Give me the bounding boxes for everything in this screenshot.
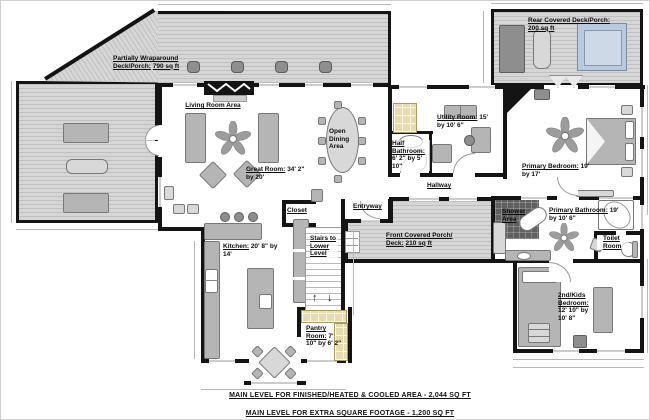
hot-tub-inner — [584, 30, 622, 66]
fireplace-zigzag — [204, 81, 254, 95]
rear-deck-sofa — [499, 25, 525, 73]
porch-top-wall — [389, 197, 493, 201]
pantry-right-wall — [348, 307, 352, 363]
bed-pillow — [625, 121, 634, 139]
dining-chair — [318, 157, 326, 165]
dimension-line — [194, 241, 195, 359]
stairs-up-arrow-icon: ↑ — [312, 293, 318, 304]
primary-bedroom-label: Primary Bedroom: 19' by 17' — [522, 163, 594, 178]
stairs-down-arrow-icon: ↓ — [327, 293, 333, 304]
living-room-label: Living Room Area — [174, 102, 252, 110]
dimension-line — [647, 85, 648, 215]
dimension-line — [201, 389, 346, 390]
bar-stool — [220, 212, 230, 222]
dining-chair — [334, 175, 342, 183]
window — [640, 107, 644, 137]
window — [259, 83, 279, 87]
window — [589, 85, 615, 89]
window — [173, 83, 197, 87]
window — [251, 381, 297, 385]
finished-area-summary: MAIN LEVEL FOR FINISHED/HEATED & COOLED … — [150, 392, 550, 399]
window — [597, 349, 625, 353]
primary-bathroom-label: Primary Bathroom: 19' by 10' 6" — [549, 207, 621, 222]
deck-sofa — [63, 123, 109, 143]
dimension-line — [16, 229, 158, 230]
console-table — [187, 204, 199, 214]
linen-cabinet — [493, 222, 506, 254]
dining-chair — [358, 157, 366, 165]
front-porch-label: Front Covered Porch/ Deck: 210 sq ft — [386, 232, 468, 247]
bed-pillow — [625, 143, 634, 161]
hallway-top-wall — [475, 173, 506, 177]
dimension-line — [158, 4, 391, 5]
window — [209, 359, 235, 363]
hallway-top-wall — [420, 173, 453, 177]
rear-deck-lounge — [533, 29, 551, 69]
great-room-bottom-wall — [158, 227, 206, 231]
deck-table — [66, 159, 108, 174]
sofa — [258, 113, 279, 163]
dimension-line — [513, 367, 644, 368]
dimension-line — [353, 229, 354, 315]
extra-area-summary: MAIN LEVEL FOR EXTRA SQUARE FOOTAGE - 1,… — [150, 410, 550, 417]
bunk-ladder — [528, 323, 550, 343]
nightstand — [621, 167, 633, 177]
ottoman — [311, 189, 323, 202]
stairs-label: Stairs to Lower Level — [310, 235, 338, 258]
pantry-shelves — [301, 310, 347, 323]
shower-area-label: Shower Area — [502, 208, 530, 223]
kids-bedroom-label: 2nd/Kids Bedroom: 12' 10" by 10' 8" — [558, 292, 598, 323]
window — [307, 359, 337, 363]
open-dining-label: Open Dining Area — [329, 128, 363, 151]
window-bench — [576, 190, 614, 197]
utility-room-label: Utility Room: 15' by 10' 6" — [437, 114, 495, 129]
utility-sink-cabinet — [432, 144, 452, 163]
porch-step-line — [345, 238, 358, 239]
pantry-label: Pantry Room: 7' 10" by 6' 2" — [306, 325, 344, 348]
window — [351, 83, 373, 87]
closet-wall — [282, 200, 286, 226]
entryway-label: Entryway — [353, 203, 393, 211]
window — [640, 149, 644, 177]
great-room-left-wall — [158, 83, 162, 125]
hallway-top-wall — [391, 173, 400, 177]
great-room-label: Great Room: 34' 2" by 20' — [246, 166, 308, 181]
window — [409, 197, 439, 201]
ceiling-fan-icon — [549, 223, 579, 258]
island-sink — [259, 294, 272, 309]
floor-plan: ↑ ↓ — [0, 0, 650, 420]
bedroom-chair — [534, 89, 550, 100]
side-table — [164, 186, 174, 200]
pantry-left-wall — [297, 307, 301, 337]
kids-chair — [573, 335, 587, 348]
bar-stool — [248, 212, 258, 222]
bunk-ladder-rung — [528, 336, 550, 337]
window — [640, 286, 644, 318]
deck-stool — [231, 61, 244, 73]
toilet-tank — [632, 241, 638, 258]
toilet-room-label: Toilet Room — [603, 235, 629, 250]
sofa — [185, 113, 206, 163]
dimension-line — [483, 11, 484, 83]
window — [449, 197, 477, 201]
desk-chair — [464, 135, 475, 146]
porch-step-line — [345, 245, 358, 246]
ceiling-fan-icon — [215, 121, 251, 162]
console-table — [173, 204, 185, 214]
deck-stool — [275, 61, 288, 73]
nightstand — [621, 105, 633, 115]
kitchen-counter-left — [204, 241, 220, 359]
wraparound-deck-label: Partially Wraparound Deck/Porch: 790 sq … — [113, 55, 191, 70]
kitchen-sink-divider — [205, 280, 218, 281]
deck-stool — [319, 61, 332, 73]
vanity-sink — [517, 252, 531, 260]
dining-chair — [358, 117, 366, 125]
window — [640, 205, 644, 229]
mudroom-cubbies — [393, 103, 417, 133]
fireplace-hearth — [213, 95, 247, 102]
kitchen-label: Kitchen: 20' 8" by 14' — [223, 243, 287, 258]
kitchen-peninsula-counter — [204, 223, 262, 240]
window — [305, 83, 323, 87]
hallway-label: Hallway — [427, 182, 463, 190]
kitchen-sink — [205, 269, 218, 293]
bunk-ladder-rung — [528, 329, 550, 330]
hall-bedroom-divider-wall — [503, 85, 507, 179]
dining-chair — [334, 101, 342, 109]
dimension-line — [11, 81, 12, 223]
porch-bottom-wall — [344, 259, 499, 263]
dining-chair — [318, 137, 326, 145]
dining-chair — [318, 117, 326, 125]
closet-label: Closet — [287, 207, 315, 215]
dimension-line — [513, 359, 644, 360]
window — [158, 177, 162, 207]
half-bathroom-label: Half Bathroom: 6' 2" by 5' 10" — [392, 140, 430, 171]
kids-left-wall — [513, 259, 517, 353]
stairs-east-wall — [341, 199, 345, 315]
deck-sofa — [63, 193, 109, 213]
dimension-line — [491, 3, 643, 4]
bar-stool — [234, 212, 244, 222]
ceiling-fan-icon — [546, 117, 584, 160]
fireplace — [204, 81, 254, 95]
dimension-line — [647, 259, 648, 353]
bath-kids-wall — [573, 259, 644, 263]
window — [399, 85, 427, 89]
rear-deck-label: Rear Covered Deck/Porch: 200 sq ft — [528, 17, 620, 32]
window — [553, 349, 579, 353]
window — [469, 85, 495, 89]
